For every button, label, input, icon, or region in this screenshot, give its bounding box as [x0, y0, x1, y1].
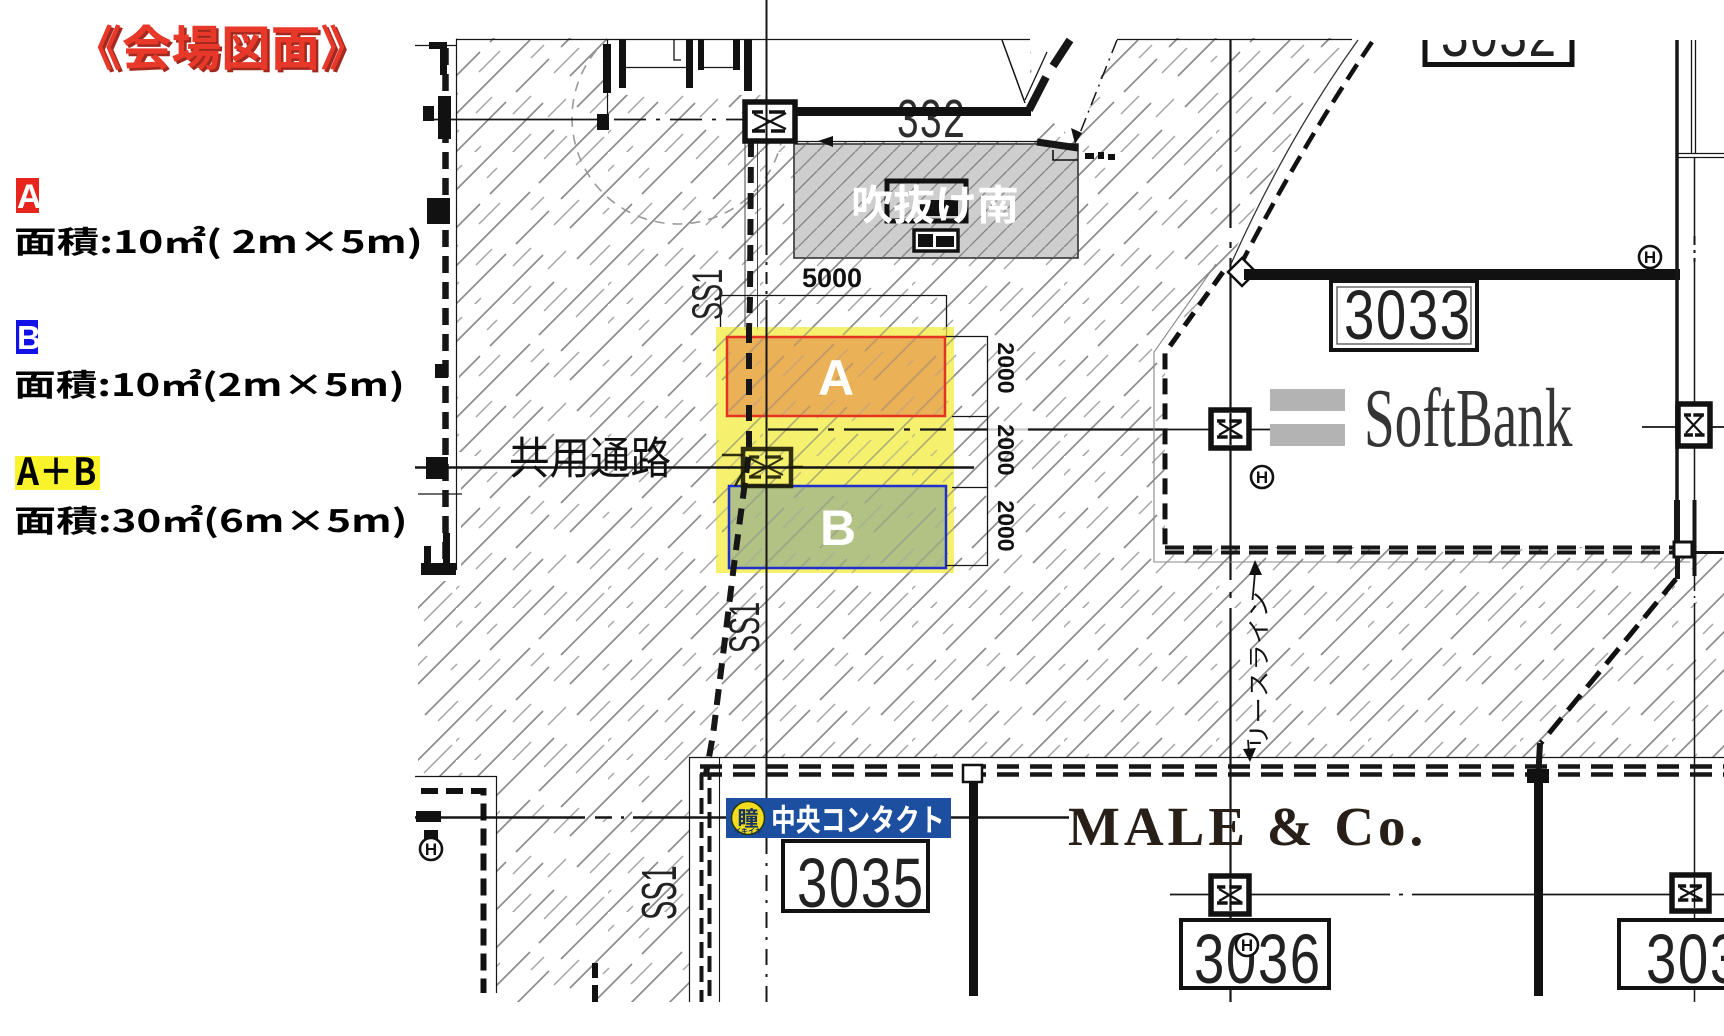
- svg-text:3033: 3033: [1344, 277, 1472, 355]
- svg-text:2000: 2000: [993, 342, 1019, 393]
- svg-text:SS1: SS1: [683, 269, 732, 320]
- svg-text:SS1: SS1: [720, 602, 769, 653]
- svg-text:H: H: [1241, 936, 1253, 955]
- svg-text:2000: 2000: [993, 424, 1019, 475]
- svg-text:303: 303: [1646, 921, 1724, 999]
- svg-text:B: B: [17, 319, 41, 356]
- svg-text:SoftBank: SoftBank: [1364, 373, 1573, 465]
- svg-text:H: H: [1256, 468, 1268, 487]
- svg-text:MALE & Co.: MALE & Co.: [1068, 796, 1427, 857]
- svg-text:2000: 2000: [993, 500, 1019, 551]
- svg-text:5000: 5000: [802, 263, 862, 293]
- svg-text:332: 332: [897, 88, 966, 149]
- svg-text:SS1: SS1: [632, 865, 687, 920]
- svg-text:B: B: [820, 500, 856, 556]
- svg-text:A: A: [17, 178, 42, 216]
- svg-text:3036: 3036: [1194, 921, 1322, 999]
- svg-text:3035: 3035: [797, 845, 925, 923]
- svg-text:H: H: [1644, 248, 1656, 267]
- svg-text:A: A: [818, 350, 854, 406]
- svg-text:H: H: [425, 840, 437, 859]
